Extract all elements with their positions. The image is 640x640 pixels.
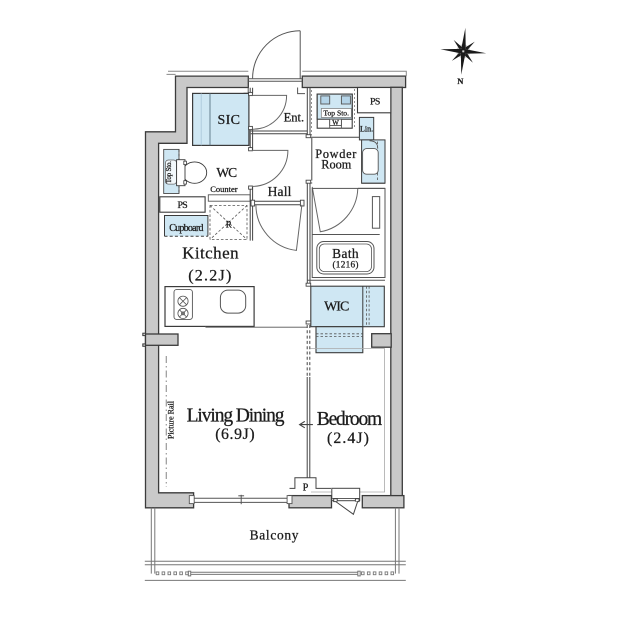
svg-text:PS: PS: [177, 200, 187, 211]
svg-text:W: W: [332, 119, 339, 127]
svg-text:Picture Rail: Picture Rail: [167, 400, 176, 439]
svg-text:Counter: Counter: [210, 184, 238, 194]
svg-text:Cupboard: Cupboard: [169, 223, 203, 234]
svg-text:WC: WC: [216, 165, 237, 180]
svg-text:(2.4J): (2.4J): [327, 430, 370, 447]
svg-text:Ent.: Ent.: [284, 111, 304, 125]
svg-text:P: P: [303, 482, 309, 493]
svg-text:(2.2J): (2.2J): [188, 268, 232, 285]
svg-text:(6.9J): (6.9J): [215, 426, 255, 443]
svg-text:Lin.: Lin.: [360, 125, 373, 134]
svg-text:PS: PS: [370, 96, 380, 107]
svg-text:N: N: [457, 76, 464, 86]
svg-text:Kitchen: Kitchen: [182, 244, 239, 263]
svg-text:Hall: Hall: [268, 184, 292, 199]
svg-text:WIC: WIC: [324, 300, 349, 315]
svg-text:Living Dining: Living Dining: [187, 406, 285, 427]
svg-text:R: R: [226, 219, 232, 229]
svg-text:Balcony: Balcony: [250, 528, 300, 543]
svg-text:Top Sto.: Top Sto.: [165, 161, 173, 183]
svg-text:Bedroom: Bedroom: [317, 409, 382, 430]
svg-text:Room: Room: [321, 158, 351, 172]
svg-text:SIC: SIC: [218, 113, 241, 128]
svg-text:Top Sto.: Top Sto.: [323, 109, 349, 118]
svg-text:(1216): (1216): [332, 259, 358, 269]
